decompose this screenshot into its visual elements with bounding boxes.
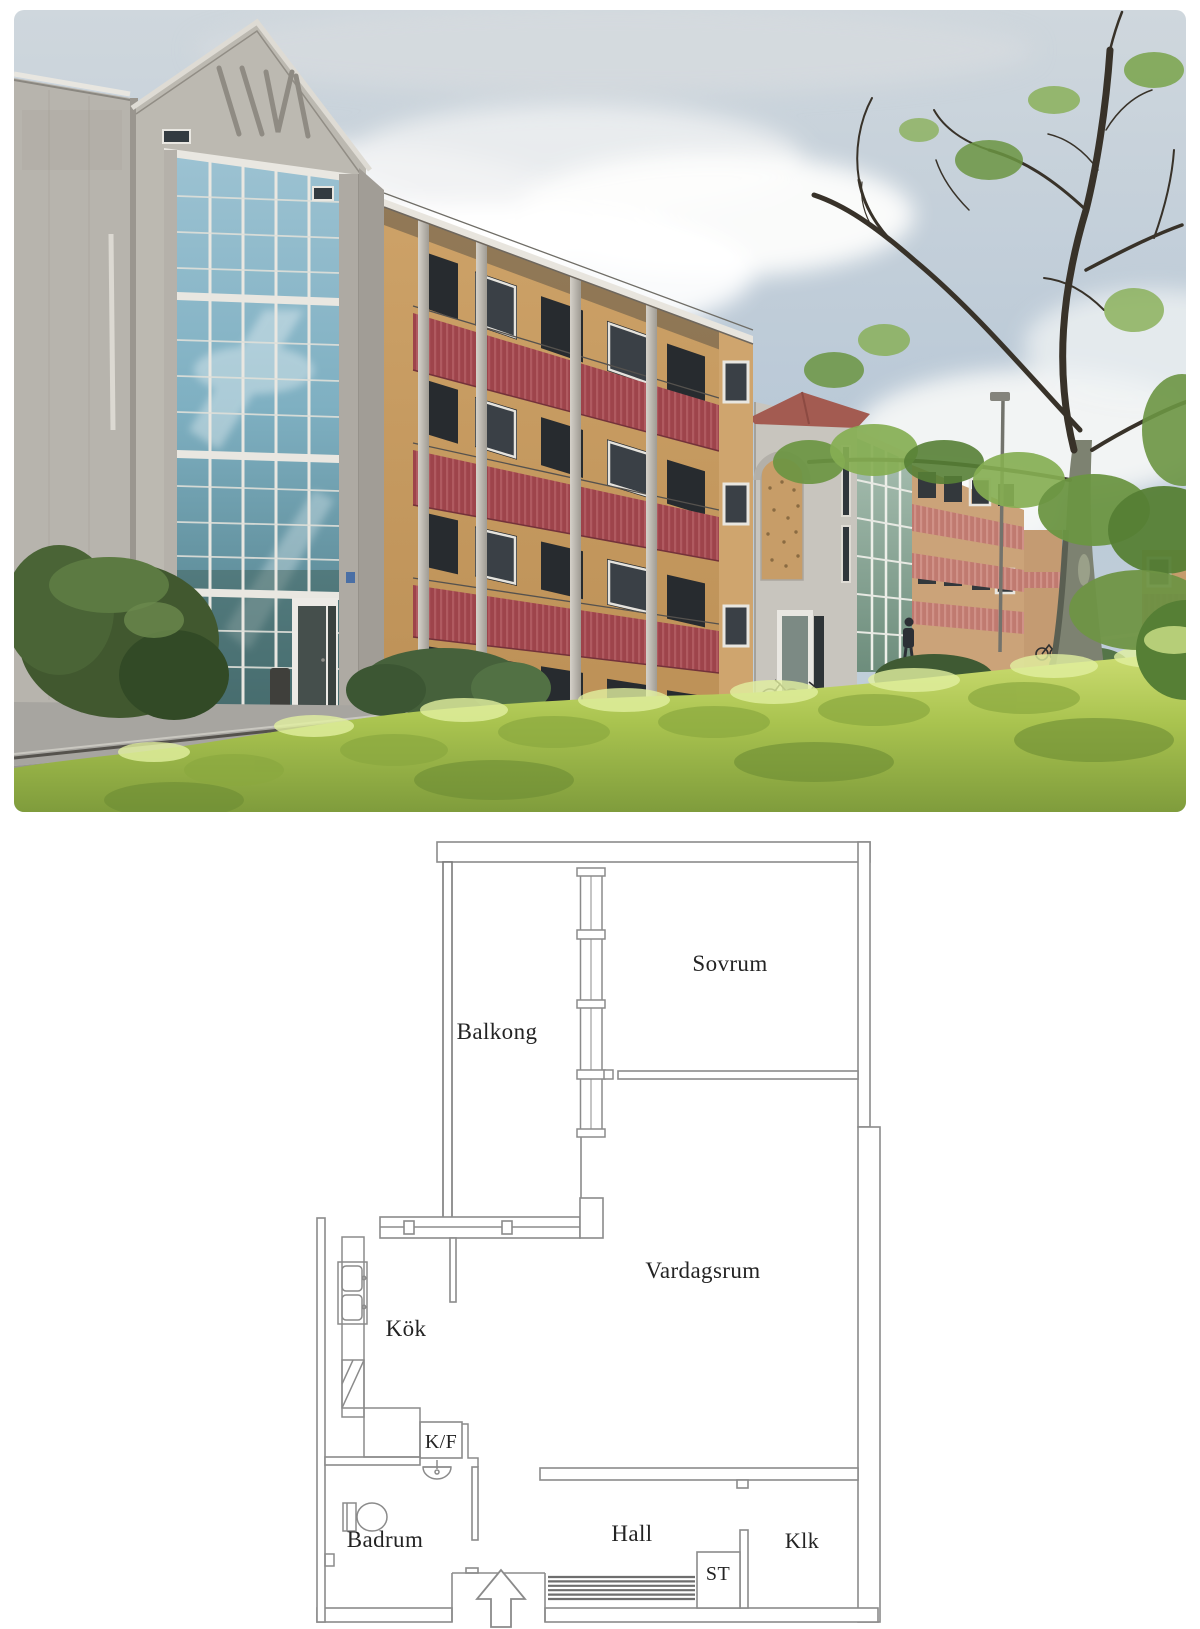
dishwasher-icon	[342, 1360, 364, 1408]
entrance-door	[292, 598, 338, 712]
window-marker	[404, 1221, 414, 1234]
washbasin-icon	[423, 1460, 451, 1479]
wall-kitchen-bottom	[325, 1457, 420, 1465]
wall-klk	[740, 1530, 748, 1608]
bin	[270, 668, 290, 710]
wall-divider-notch	[737, 1480, 748, 1488]
room-label-kf: K/F	[425, 1431, 457, 1453]
wall-kitchen-stub	[450, 1238, 456, 1302]
room-label-kok: Kök	[386, 1316, 427, 1341]
listing-photo[interactable]	[14, 10, 1186, 812]
exterior-photo-illustration	[14, 10, 1186, 812]
downpipe	[111, 234, 113, 430]
info-sign	[346, 572, 355, 583]
wall-balcony-left	[443, 862, 452, 1218]
room-label-badrum: Badrum	[347, 1527, 424, 1552]
towel-rail-icon	[325, 1554, 334, 1566]
room-label-balkong: Balkong	[457, 1019, 538, 1044]
room-label-vardagsrum: Vardagsrum	[645, 1258, 760, 1283]
room-label-hall: Hall	[611, 1521, 652, 1546]
wall-top	[437, 842, 870, 862]
wall-bottom-right	[545, 1608, 878, 1622]
room-label-sovrum: Sovrum	[692, 951, 767, 976]
floor-plan-drawing: Balkong Sovrum Vardagsrum Kök K/F Badrum…	[0, 812, 1200, 1629]
vent-window	[313, 187, 333, 200]
brick-right-wing	[719, 328, 753, 710]
wall-bottom-left	[317, 1608, 452, 1622]
doormat-icon	[548, 1577, 695, 1599]
entrance-arrow-icon	[477, 1570, 525, 1627]
window-marker	[502, 1221, 512, 1234]
kitchen-counter	[342, 1237, 364, 1417]
vent-window	[163, 130, 190, 143]
room-label-klk: Klk	[785, 1528, 819, 1553]
wall-right-upper	[858, 842, 870, 1127]
wall-right-lower	[858, 1127, 880, 1622]
room-label-st: ST	[706, 1563, 730, 1585]
wall-badrum-right	[472, 1467, 478, 1540]
wall-post	[580, 1198, 603, 1238]
wall-sovrum-bottom	[618, 1071, 858, 1079]
kf-side-jog	[462, 1424, 478, 1467]
wall-left	[317, 1218, 325, 1622]
kitchen-counter-return	[364, 1408, 420, 1457]
wall-hall-divider	[540, 1468, 858, 1480]
glazed-balcony-wall	[577, 868, 613, 1137]
floor-plan[interactable]: Balkong Sovrum Vardagsrum Kök K/F Badrum…	[0, 812, 1200, 1629]
